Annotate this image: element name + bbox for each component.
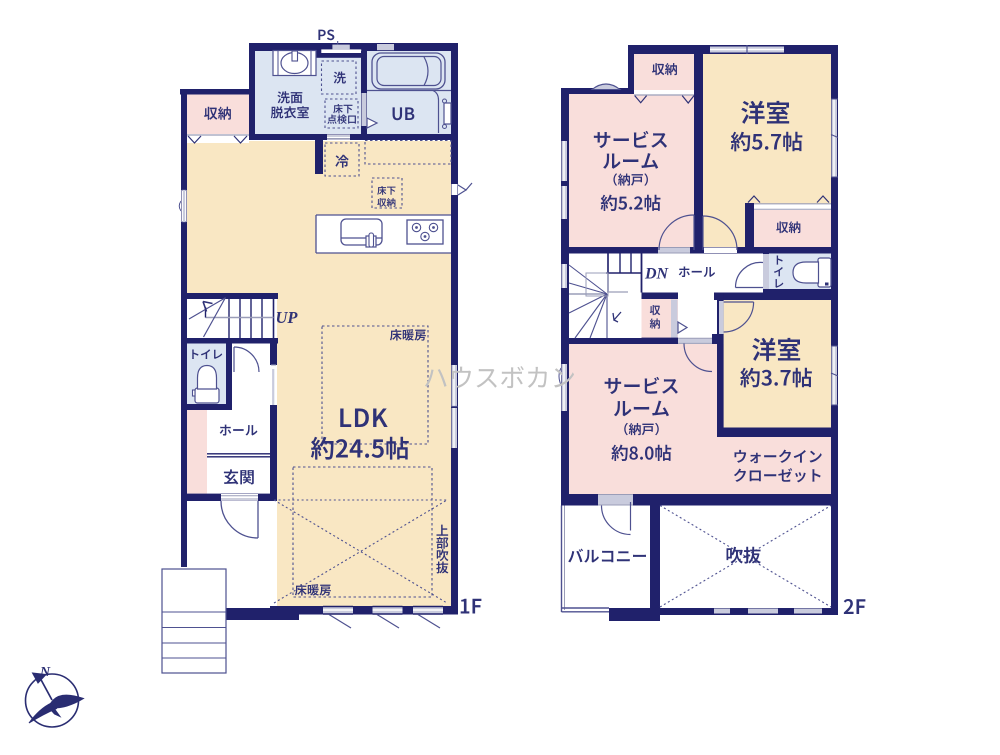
- svg-text:DN: DN: [644, 266, 670, 283]
- svg-text:UP: UP: [276, 308, 299, 327]
- svg-text:N: N: [39, 665, 51, 680]
